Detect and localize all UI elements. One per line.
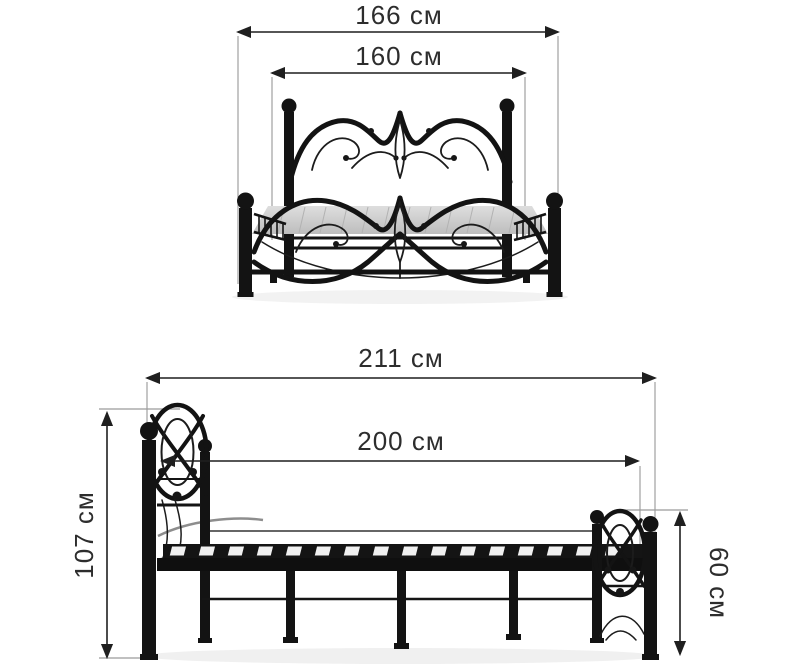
dimension-labels: 166 см 160 см 211 см 200 см 107 см 60 см: [69, 0, 734, 619]
dimension-label-overall-width: 166 см: [355, 0, 442, 30]
front-bed-shadow: [232, 290, 568, 304]
mattress-deck-front-view: [252, 206, 548, 234]
slat-platform-side-view: [157, 531, 651, 649]
dimension-label-overall-length: 211 см: [358, 343, 444, 373]
headboard-side-view: [140, 405, 212, 660]
dimension-label-mattress-width: 160 см: [355, 41, 442, 71]
dimension-label-headboard-height: 107 см: [69, 491, 99, 578]
diagram-canvas: 166 см 160 см 211 см 200 см 107 см 60 см: [0, 0, 800, 668]
dimension-label-footboard-height: 60 см: [704, 547, 734, 619]
dimension-label-mattress-length: 200 см: [357, 426, 444, 456]
front-view-bed-illustration: [232, 99, 568, 305]
side-bed-shadow: [142, 648, 658, 664]
footboard-side-view: [590, 510, 659, 660]
product-dimension-diagram: 166 см 160 см 211 см 200 см 107 см 60 см: [0, 0, 800, 668]
